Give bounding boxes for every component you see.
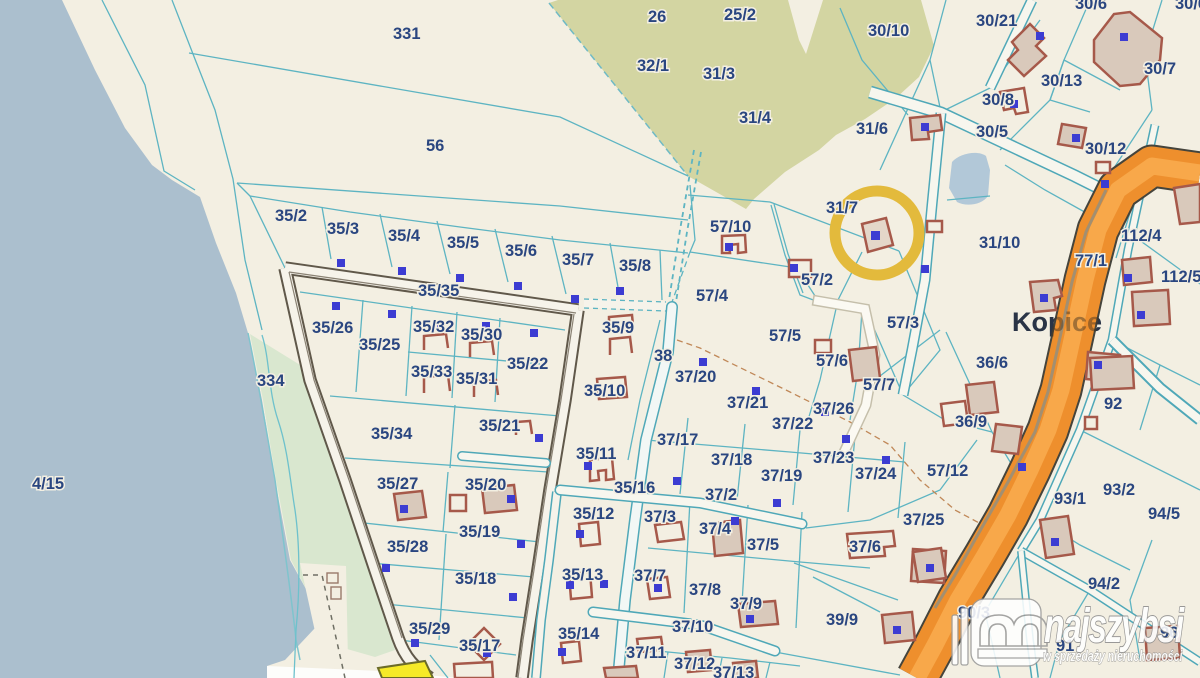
svg-text:37/10: 37/10 <box>672 618 713 636</box>
svg-text:35/30: 35/30 <box>461 326 502 344</box>
svg-text:35/6: 35/6 <box>505 242 537 260</box>
svg-text:31/10: 31/10 <box>979 234 1020 252</box>
svg-text:57/5: 57/5 <box>769 327 801 345</box>
svg-text:35/17: 35/17 <box>459 637 500 655</box>
svg-text:35/9: 35/9 <box>602 319 634 337</box>
svg-text:35/3: 35/3 <box>327 220 359 238</box>
svg-text:26: 26 <box>648 8 666 26</box>
svg-text:94/2: 94/2 <box>1088 575 1120 593</box>
svg-text:94/5: 94/5 <box>1148 505 1180 523</box>
svg-text:37/25: 37/25 <box>903 511 944 529</box>
svg-text:37/23: 37/23 <box>813 449 854 467</box>
svg-text:35/31: 35/31 <box>456 370 497 388</box>
svg-text:35/26: 35/26 <box>312 319 353 337</box>
svg-text:30/6: 30/6 <box>1075 0 1107 13</box>
svg-text:77/1: 77/1 <box>1075 252 1107 270</box>
svg-text:35/14: 35/14 <box>558 625 600 643</box>
svg-text:35/11: 35/11 <box>576 445 616 463</box>
svg-text:30/8: 30/8 <box>982 91 1014 109</box>
svg-text:najszybsi: najszybsi <box>1044 598 1185 652</box>
svg-text:38: 38 <box>654 347 672 365</box>
svg-text:35/22: 35/22 <box>507 355 548 373</box>
svg-text:37/8: 37/8 <box>689 581 721 599</box>
svg-text:35/33: 35/33 <box>411 363 452 381</box>
svg-text:57/12: 57/12 <box>927 462 968 480</box>
svg-text:93/2: 93/2 <box>1103 481 1135 499</box>
svg-text:92: 92 <box>1104 395 1122 413</box>
svg-text:30/10: 30/10 <box>868 22 909 40</box>
svg-text:57/10: 57/10 <box>710 218 751 236</box>
svg-text:35/21: 35/21 <box>479 417 520 435</box>
svg-text:35/18: 35/18 <box>455 570 496 588</box>
svg-text:37/3: 37/3 <box>644 508 676 526</box>
svg-text:37/24: 37/24 <box>855 465 897 483</box>
svg-text:37/4: 37/4 <box>699 520 732 538</box>
svg-text:35/12: 35/12 <box>573 505 614 523</box>
svg-text:39/9: 39/9 <box>826 611 858 629</box>
svg-text:30/7: 30/7 <box>1144 60 1176 78</box>
svg-text:35/34: 35/34 <box>371 425 413 443</box>
svg-text:36/6: 36/6 <box>976 354 1008 372</box>
svg-text:37/7: 37/7 <box>634 567 666 585</box>
svg-text:35/8: 35/8 <box>619 257 651 275</box>
svg-text:36/9: 36/9 <box>955 413 987 431</box>
svg-text:35/27: 35/27 <box>377 475 418 493</box>
svg-text:57/6: 57/6 <box>816 352 848 370</box>
svg-text:112/5: 112/5 <box>1161 268 1200 286</box>
svg-text:37/19: 37/19 <box>761 467 802 485</box>
svg-text:37/9: 37/9 <box>730 595 762 613</box>
svg-text:35/32: 35/32 <box>413 318 454 336</box>
svg-text:Kopice: Kopice <box>1012 307 1102 337</box>
svg-text:35/20: 35/20 <box>465 476 506 494</box>
svg-text:w sprzedaży nieruchomości: w sprzedaży nieruchomości <box>1043 647 1183 664</box>
svg-text:35/10: 35/10 <box>584 382 625 400</box>
svg-text:37/11: 37/11 <box>626 644 666 662</box>
svg-text:93/1: 93/1 <box>1054 490 1086 508</box>
svg-text:35/4: 35/4 <box>388 227 421 245</box>
svg-text:37/20: 37/20 <box>675 368 716 386</box>
svg-text:30/13: 30/13 <box>1041 72 1082 90</box>
svg-text:31/4: 31/4 <box>739 109 772 127</box>
svg-text:37/22: 37/22 <box>772 415 813 433</box>
svg-text:37/18: 37/18 <box>711 451 752 469</box>
svg-text:37/12: 37/12 <box>674 655 715 673</box>
svg-text:31/7: 31/7 <box>826 199 858 217</box>
svg-text:37/6: 37/6 <box>849 538 881 556</box>
svg-text:57/4: 57/4 <box>696 287 729 305</box>
svg-text:35/29: 35/29 <box>409 620 450 638</box>
svg-text:35/7: 35/7 <box>562 251 594 269</box>
svg-text:35/35: 35/35 <box>418 282 459 300</box>
svg-text:37/2: 37/2 <box>705 486 737 504</box>
svg-text:57/3: 57/3 <box>887 314 919 332</box>
svg-text:35/28: 35/28 <box>387 538 428 556</box>
svg-text:35/25: 35/25 <box>359 336 400 354</box>
svg-text:31/6: 31/6 <box>856 120 888 138</box>
svg-text:56: 56 <box>426 137 444 155</box>
svg-text:57/7: 57/7 <box>863 376 895 394</box>
svg-text:35/13: 35/13 <box>562 566 603 584</box>
svg-text:35/16: 35/16 <box>614 479 655 497</box>
svg-text:37/21: 37/21 <box>727 394 768 412</box>
svg-text:31/3: 31/3 <box>703 65 735 83</box>
svg-text:37/5: 37/5 <box>747 536 779 554</box>
svg-text:57/2: 57/2 <box>801 271 833 289</box>
svg-text:30/6: 30/6 <box>1175 0 1200 13</box>
svg-text:35/19: 35/19 <box>459 523 500 541</box>
svg-text:35/5: 35/5 <box>447 234 479 252</box>
svg-text:32/1: 32/1 <box>637 57 669 75</box>
svg-text:30/21: 30/21 <box>976 12 1017 30</box>
svg-text:37/13: 37/13 <box>713 664 754 678</box>
svg-text:25/2: 25/2 <box>724 6 756 24</box>
svg-text:35/2: 35/2 <box>275 207 307 225</box>
svg-text:334: 334 <box>257 372 285 390</box>
svg-text:37/17: 37/17 <box>657 431 698 449</box>
svg-text:30/5: 30/5 <box>976 123 1008 141</box>
svg-text:4/15: 4/15 <box>32 475 64 493</box>
svg-text:112/4: 112/4 <box>1121 227 1162 245</box>
svg-text:331: 331 <box>393 25 421 43</box>
svg-text:37/26: 37/26 <box>813 400 854 418</box>
svg-text:30/12: 30/12 <box>1085 140 1126 158</box>
